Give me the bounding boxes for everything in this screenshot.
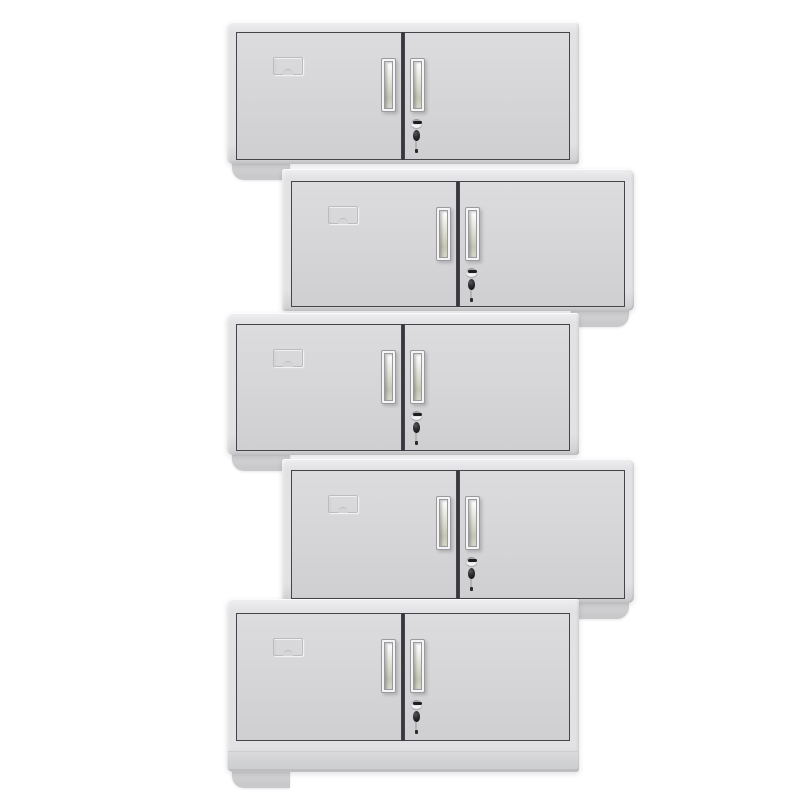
lock-with-key xyxy=(465,557,478,599)
handle-recess xyxy=(439,210,448,258)
keyhole-slot-icon xyxy=(413,702,422,706)
cabinet-body xyxy=(227,22,579,164)
key-bow-icon xyxy=(413,422,420,433)
keyhole-slot-icon xyxy=(413,121,422,125)
handle-recess xyxy=(413,61,422,109)
key-tip-icon xyxy=(470,298,473,302)
handle-recess xyxy=(468,499,477,547)
cabinet-body xyxy=(227,599,579,772)
cabinet-body xyxy=(227,313,579,455)
label-card-holder xyxy=(328,206,358,224)
scene xyxy=(0,0,800,800)
key-bow-icon xyxy=(413,711,420,722)
label-holder-notch xyxy=(338,218,348,224)
left-door-handle xyxy=(381,350,396,404)
left-door xyxy=(236,613,402,741)
label-card-holder xyxy=(328,495,358,513)
door-area xyxy=(236,613,570,741)
right-door-handle xyxy=(465,496,480,550)
key-bow-icon xyxy=(468,279,475,290)
handle-recess xyxy=(413,642,422,690)
door-area xyxy=(236,324,570,451)
left-door-handle xyxy=(381,639,396,693)
label-card-holder xyxy=(273,638,303,656)
cabinet-body xyxy=(282,459,634,603)
handle-recess xyxy=(384,642,393,690)
cabinet-3 xyxy=(227,313,579,455)
cabinet-body xyxy=(282,169,634,311)
label-holder-notch xyxy=(338,507,348,513)
cabinet-base xyxy=(232,770,290,788)
lock-cylinder-icon xyxy=(466,268,477,277)
door-area xyxy=(291,470,625,599)
lock-cylinder-icon xyxy=(411,411,422,420)
right-door xyxy=(459,470,625,599)
right-door-handle xyxy=(410,350,425,404)
handle-recess xyxy=(439,499,448,547)
lock-with-key xyxy=(465,268,478,310)
right-door-handle xyxy=(410,58,425,112)
lock-cylinder-icon xyxy=(466,557,477,566)
key-tip-icon xyxy=(415,730,418,734)
left-door-handle xyxy=(436,496,451,550)
right-door xyxy=(404,32,570,160)
left-door-handle xyxy=(436,207,451,261)
cabinet-4 xyxy=(282,459,634,603)
cabinet-plinth xyxy=(228,751,578,771)
left-door xyxy=(236,324,402,451)
keyhole-slot-icon xyxy=(468,270,477,274)
right-door xyxy=(459,181,625,307)
key-tip-icon xyxy=(415,441,418,445)
label-card-holder xyxy=(273,57,303,75)
cabinet-5 xyxy=(227,599,579,772)
key-tip-icon xyxy=(470,587,473,591)
door-area xyxy=(291,181,625,307)
lock-cylinder-icon xyxy=(411,119,422,128)
key-bow-icon xyxy=(468,568,475,579)
cabinet-base xyxy=(571,309,629,327)
label-holder-notch xyxy=(283,650,293,656)
left-door xyxy=(291,470,457,599)
lock-with-key xyxy=(410,119,423,161)
key-bow-icon xyxy=(413,130,420,141)
lock-cylinder-icon xyxy=(411,700,422,709)
handle-recess xyxy=(384,353,393,401)
cabinet-2 xyxy=(282,169,634,311)
handle-recess xyxy=(413,353,422,401)
keyhole-slot-icon xyxy=(468,559,477,563)
lock-with-key xyxy=(410,411,423,453)
left-door-handle xyxy=(381,58,396,112)
cabinet-1 xyxy=(227,22,579,164)
left-door xyxy=(291,181,457,307)
cabinet-base xyxy=(571,601,629,619)
right-door-handle xyxy=(465,207,480,261)
label-card-holder xyxy=(273,349,303,367)
handle-recess xyxy=(468,210,477,258)
label-holder-notch xyxy=(283,69,293,75)
left-door xyxy=(236,32,402,160)
keyhole-slot-icon xyxy=(413,413,422,417)
right-door xyxy=(404,324,570,451)
right-door xyxy=(404,613,570,741)
key-tip-icon xyxy=(415,149,418,153)
right-door-handle xyxy=(410,639,425,693)
handle-recess xyxy=(384,61,393,109)
lock-with-key xyxy=(410,700,423,742)
door-area xyxy=(236,32,570,160)
label-holder-notch xyxy=(283,361,293,367)
